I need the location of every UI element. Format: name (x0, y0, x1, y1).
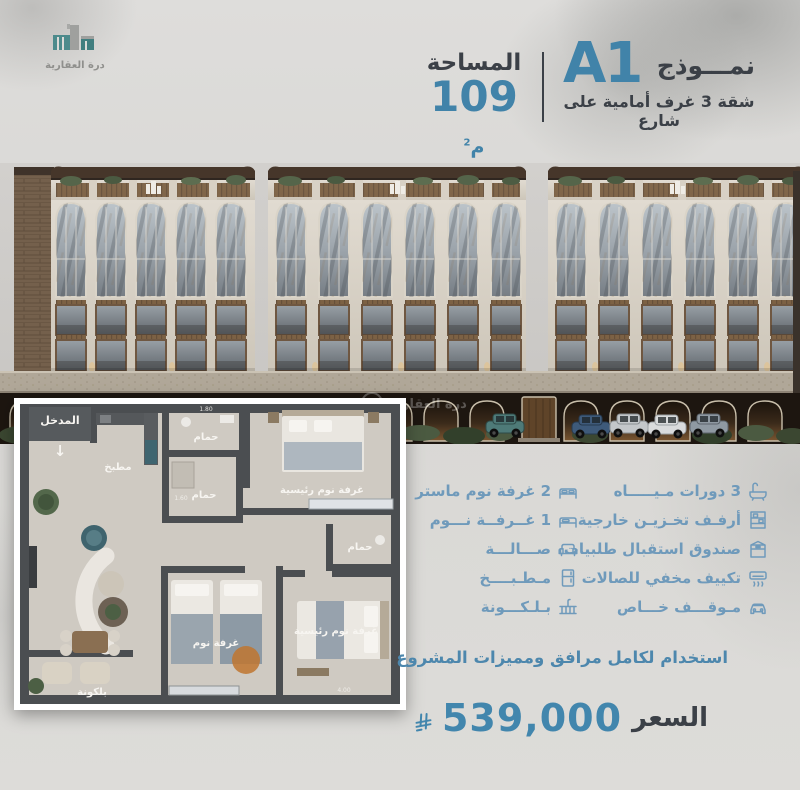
price-value: 539,000 (442, 696, 622, 740)
brand-logo: درة العقارية (36, 24, 114, 71)
shower (172, 462, 194, 488)
bedroom-label: غرفة نوم (193, 638, 240, 649)
toilet (181, 417, 191, 427)
building-block-center (268, 167, 526, 374)
sink (220, 415, 234, 423)
model-block: نمـــوذج A1 شقة 3 غرف أمامية على شارع (563, 40, 755, 130)
features-right-column: 3 دورات مـيـــــاه أرفـف تخـزيـن خارجية … (564, 481, 768, 626)
price-label: السعر (632, 703, 708, 733)
saudi-riyal-icon (415, 713, 432, 732)
model-subtitle: شقة 3 غرف أمامية على شارع (563, 92, 755, 130)
feature-item: مـوقـــف خـــاص (564, 597, 768, 617)
feature-item: 2 غرفة نوم ماستر (415, 481, 578, 501)
entrance-door (518, 397, 560, 442)
brand-name: درة العقارية (36, 60, 114, 71)
bathroom-label-1: حمام (194, 432, 219, 443)
header-divider (542, 52, 544, 122)
master-bedroom-2-label: غرفة نوم رئيسية (294, 626, 378, 637)
balcony-label: بلكونة (77, 687, 107, 698)
entrance-label: المدخل (40, 414, 79, 427)
price-row: السعر 539,000 (415, 696, 708, 740)
feature-item: صندوق استقبال طلبيات (564, 539, 768, 559)
master-bedroom-1-label: غرفة نوم رئيسية (280, 485, 364, 496)
usage-note: استخدام لكامل مرافق ومميزات المشروع (396, 648, 728, 667)
storage-shelves-icon (748, 510, 768, 530)
feature-item: صـــالـــة (415, 539, 578, 559)
air-conditioner-icon (748, 568, 768, 588)
entrance-arrow: ↓ (54, 442, 67, 460)
kitchen-icon (558, 568, 578, 588)
model-code: A1 (563, 40, 641, 88)
flyer: درة العقارية المساحة 109 م2 نمـــوذج A1 … (0, 0, 800, 790)
parking-icon (748, 597, 768, 617)
area-value: 109 م2 (425, 76, 523, 160)
kitchen-label: مطبخ (104, 462, 131, 473)
brand-logo-icon (43, 24, 107, 54)
model-label: نمـــوذج (657, 51, 755, 88)
svg-text:4.00: 4.00 (337, 687, 351, 694)
parcel-box-icon (748, 539, 768, 559)
bathroom-label-3: حمام (348, 542, 373, 553)
area-block: المساحة 109 م2 (425, 50, 523, 160)
bathroom-icon (748, 481, 768, 501)
feature-item: 1 غــرفــة نـــوم (415, 510, 578, 530)
svg-text:1.80: 1.80 (199, 406, 213, 413)
feature-item: تكييف مخفي للصالات (564, 568, 768, 588)
single-bed-icon (558, 510, 578, 530)
feature-item: بـلـكـــونة (415, 597, 578, 617)
area-number: 109 (430, 72, 518, 121)
balcony-icon (558, 597, 578, 617)
floor-plan: المدخل ↓ مطبخ حمام حمام (14, 398, 406, 710)
bathroom-label-2: حمام (192, 490, 217, 501)
feature-item: أرفـف تخـزيـن خارجية (564, 510, 768, 530)
sofa-icon (558, 539, 578, 559)
features-left-column: 2 غرفة نوم ماستر 1 غــرفــة نـــوم صـــا… (415, 481, 578, 626)
building-block-right (548, 167, 800, 374)
building-block-left (51, 167, 255, 374)
model-row: نمـــوذج A1 (563, 40, 755, 88)
svg-text:1.60: 1.60 (174, 495, 188, 502)
double-bed-icon (558, 481, 578, 501)
stone-band (0, 373, 800, 393)
area-unit: م2 (464, 136, 485, 158)
feature-item: 3 دورات مـيـــــاه (564, 481, 768, 501)
feature-item: مـطـبــــخ (415, 568, 578, 588)
brick-tower (14, 171, 51, 393)
